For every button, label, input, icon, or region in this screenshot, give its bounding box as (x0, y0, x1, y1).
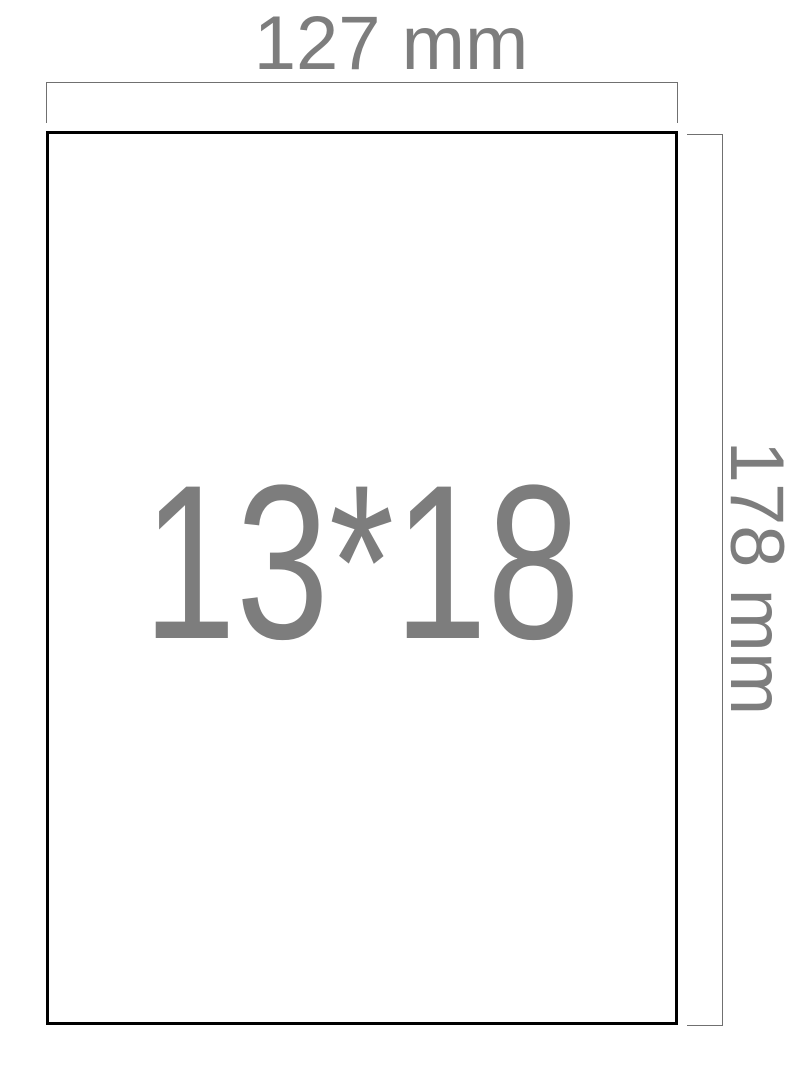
paper-rectangle: 13*18 (46, 131, 678, 1025)
paper-size-label: 13*18 (143, 452, 580, 672)
dimension-diagram: 127 mm 13*18 178 mm (0, 0, 800, 1066)
width-dimension-label: 127 mm (254, 6, 529, 82)
width-dimension-tick-right (677, 82, 678, 123)
height-dimension-tick-bottom (687, 1025, 722, 1026)
width-dimension-tick-left (46, 82, 47, 123)
height-dimension-tick-top (687, 134, 722, 135)
height-dimension-label: 178 mm (718, 441, 794, 716)
